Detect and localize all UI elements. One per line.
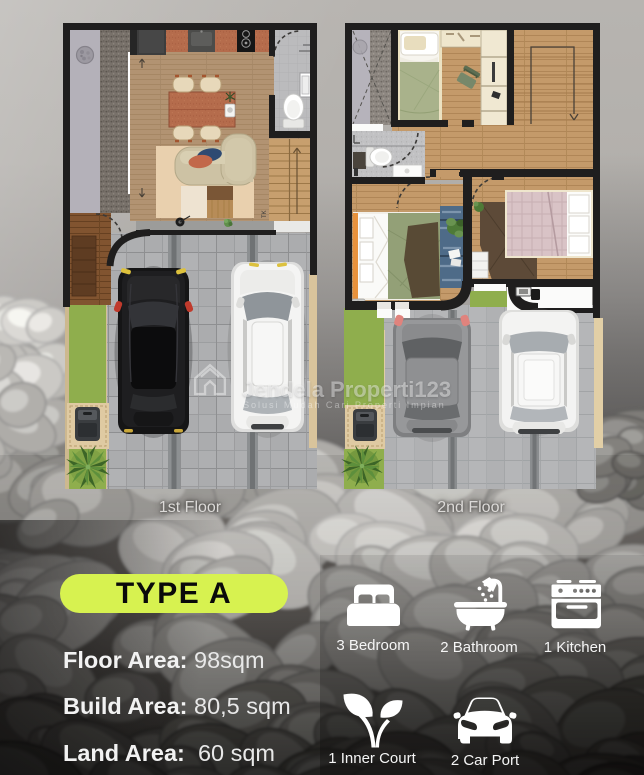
svg-text:TK: TK	[262, 210, 268, 218]
